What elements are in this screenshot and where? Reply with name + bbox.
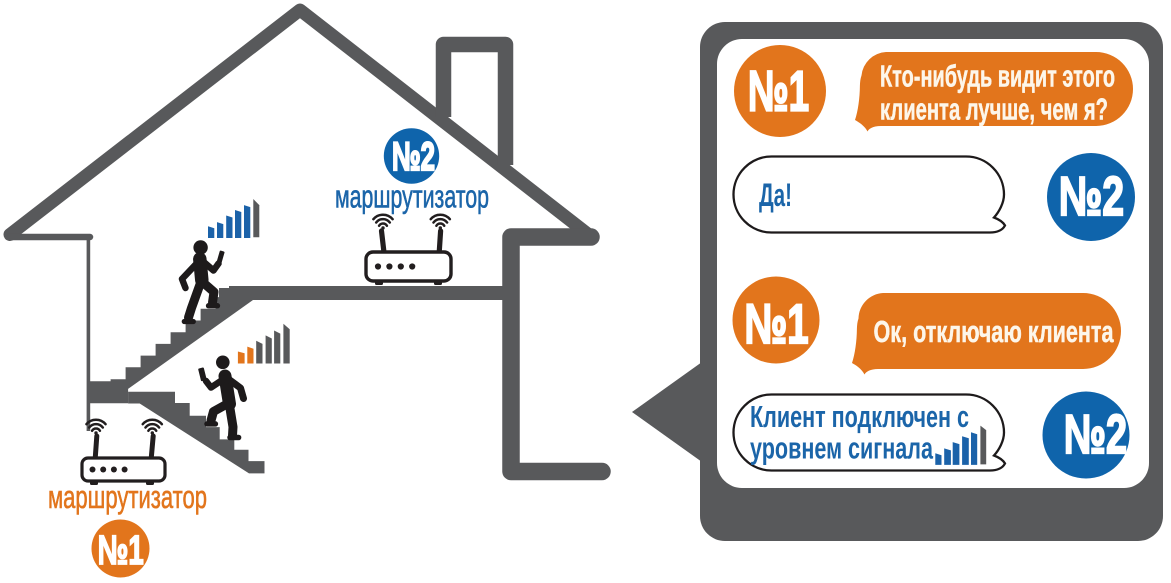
svg-text:№1: №1 — [748, 60, 809, 124]
svg-text:№1: №1 — [98, 527, 144, 573]
svg-text:№2: №2 — [1059, 165, 1124, 227]
svg-text:уровнем сигнала: уровнем сигнала — [750, 431, 934, 466]
svg-text:Ок, отключаю клиента: Ок, отключаю клиента — [874, 314, 1115, 349]
svg-text:№2: №2 — [1064, 403, 1127, 465]
svg-text:Да!: Да! — [759, 177, 792, 213]
svg-text:№2: №2 — [392, 135, 435, 179]
svg-text:Клиент подключен с: Клиент подключен с — [750, 399, 969, 434]
svg-text:клиента лучше, чем я?: клиента лучше, чем я? — [880, 92, 1108, 127]
svg-text:маршрутизатор: маршрутизатор — [335, 179, 489, 215]
svg-text:Кто-нибудь видит этого: Кто-нибудь видит этого — [880, 59, 1115, 94]
svg-text:№1: №1 — [745, 292, 809, 355]
svg-text:маршрутизатор: маршрутизатор — [48, 479, 207, 515]
